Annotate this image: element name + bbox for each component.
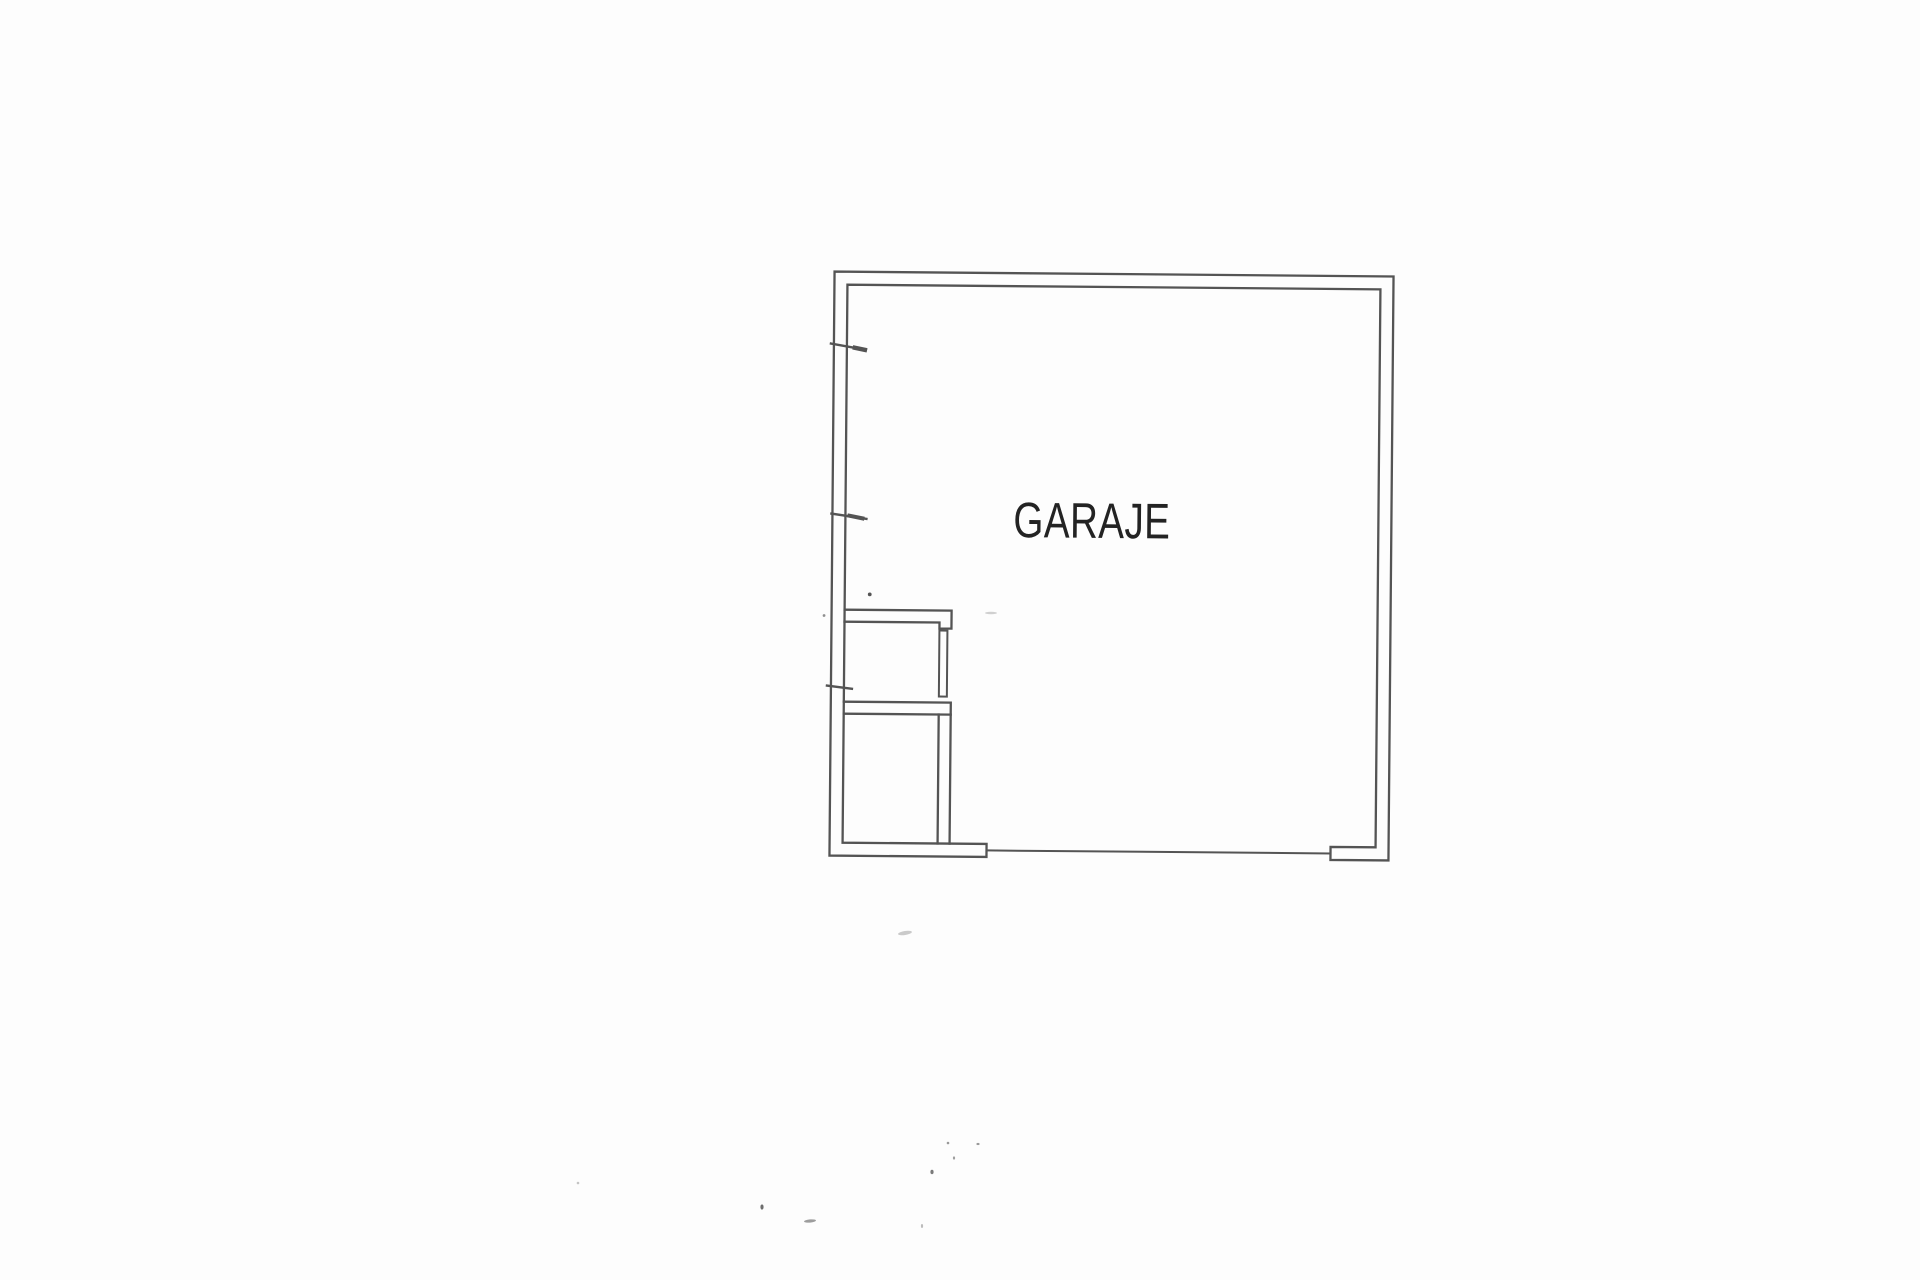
garage-door-threshold-line — [987, 850, 1331, 853]
plan-linework — [825, 272, 1393, 861]
scan-speck — [577, 1182, 580, 1185]
wall-tick-mark-middle-blob — [849, 516, 862, 519]
scan-speck — [930, 1170, 933, 1174]
storeroom-right-wall — [938, 715, 951, 844]
ink-dot — [868, 592, 872, 596]
scan-speck — [985, 612, 997, 614]
scan-speck — [804, 1219, 816, 1223]
room-label-garaje: GARAJE — [1013, 492, 1170, 549]
floorplan-drawing: GARAJE — [821, 272, 1394, 861]
scan-speck — [947, 1142, 950, 1145]
plan-ink-dots — [823, 592, 872, 617]
scan-speck — [921, 1224, 923, 1228]
scan-speck — [760, 1204, 763, 1209]
storeroom-divider-wall — [844, 702, 951, 715]
ink-dot — [823, 614, 826, 617]
storeroom-top-wall — [844, 610, 951, 629]
scan-speck — [898, 930, 912, 936]
scan-speck — [953, 1156, 955, 1159]
scan-speck — [976, 1143, 979, 1145]
storeroom-door-leaf — [939, 631, 948, 697]
scanned-floorplan-page: GARAJE — [0, 0, 1920, 1280]
wall-tick-mark-upper-blob — [855, 348, 865, 350]
exterior-walls-path — [829, 272, 1393, 861]
scan-specks — [577, 612, 997, 1228]
floorplan-svg: GARAJE — [0, 0, 1920, 1280]
